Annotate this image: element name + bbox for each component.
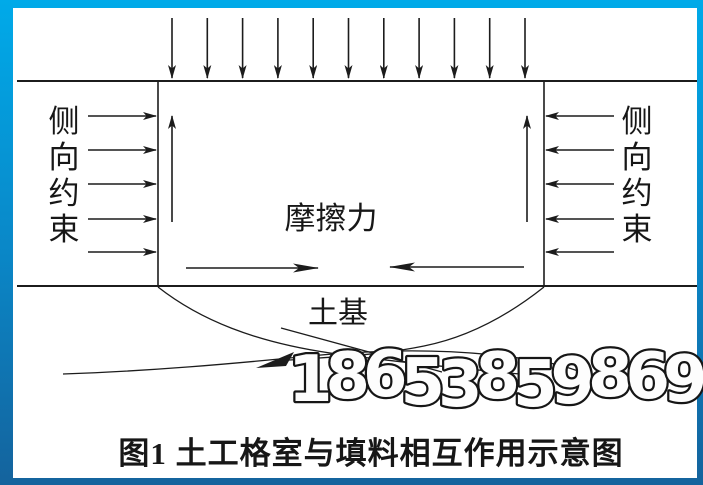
right-confinement-label: 侧向约束 [622,104,653,247]
load-arrows-group [172,18,525,78]
watermark-phone-number: 18653859869 [288,338,703,422]
right-confinement-arrows-group [546,116,614,252]
left-confinement-arrows-group [88,116,156,252]
left-confinement-label: 侧向约束 [49,104,80,247]
figure-caption: 图1 土工格室与填料相互作用示意图 [118,436,623,471]
friction-label: 摩擦力 [285,201,378,236]
schematic-diagram: 侧向约束 侧向约束 摩擦力 土基 18653859869 图1 土工格室与填料相… [0,0,703,485]
figure-image: 侧向约束 侧向约束 摩擦力 土基 18653859869 图1 土工格室与填料相… [0,0,703,485]
soil-foundation-label: 土基 [308,297,368,330]
